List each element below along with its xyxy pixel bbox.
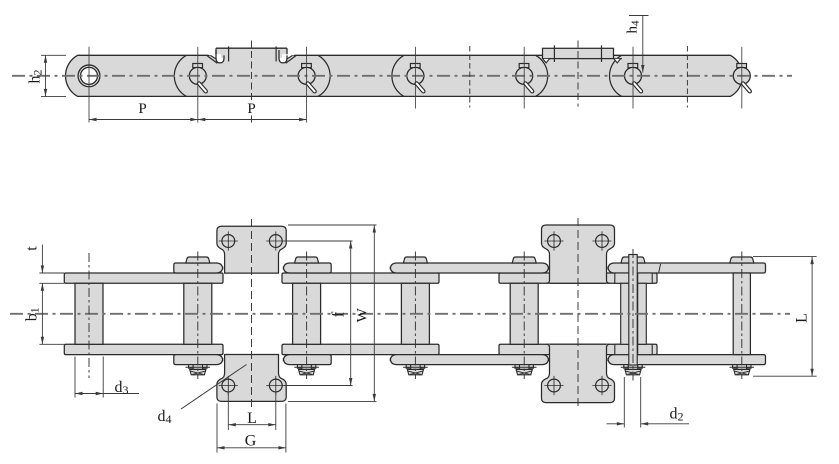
svg-text:P: P: [138, 101, 146, 117]
svg-text:W: W: [355, 307, 371, 322]
svg-text:f: f: [329, 311, 348, 317]
svg-text:P: P: [247, 101, 255, 117]
svg-text:L: L: [794, 313, 811, 323]
svg-text:t: t: [24, 246, 41, 251]
svg-text:L: L: [247, 410, 257, 427]
svg-text:G: G: [245, 433, 257, 450]
